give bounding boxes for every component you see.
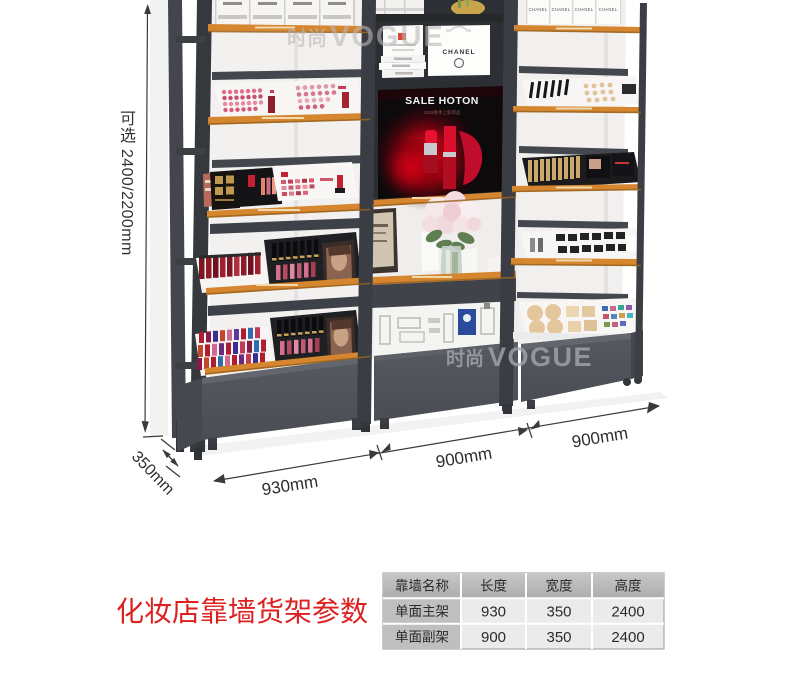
svg-text:化妆店靠墙货架参数: 化妆店靠墙货架参数 xyxy=(116,596,368,627)
svg-text:高度: 高度 xyxy=(615,578,642,594)
svg-text:宽度: 宽度 xyxy=(546,578,573,594)
svg-text:时尚: 时尚 xyxy=(287,26,327,50)
svg-text:长度: 长度 xyxy=(480,579,507,594)
svg-text:可: 可 xyxy=(120,111,136,128)
svg-text:2400/2200mm: 2400/2200mm xyxy=(118,149,135,256)
svg-text:SALE HOTON: SALE HOTON xyxy=(405,95,479,107)
svg-text:900: 900 xyxy=(481,629,506,646)
svg-text:VOGUE: VOGUE xyxy=(488,342,593,372)
svg-text:350: 350 xyxy=(546,629,571,646)
svg-text:VOGUE: VOGUE xyxy=(330,21,445,53)
svg-text:350: 350 xyxy=(546,604,571,621)
svg-text:单面主架: 单面主架 xyxy=(395,604,449,619)
svg-text:选: 选 xyxy=(120,127,136,145)
svg-text:时尚: 时尚 xyxy=(446,347,484,370)
svg-text:2400: 2400 xyxy=(611,629,644,646)
svg-text:CHANEL: CHANEL xyxy=(442,49,475,56)
svg-text:2400: 2400 xyxy=(611,604,644,621)
svg-text:930: 930 xyxy=(481,604,506,621)
svg-text:2019春季上新新品: 2019春季上新新品 xyxy=(423,109,461,116)
svg-text:CHANEL: CHANEL xyxy=(575,7,594,12)
svg-text:靠墙名称: 靠墙名称 xyxy=(395,579,449,594)
svg-text:CHANEL: CHANEL xyxy=(552,7,571,12)
svg-text:CHANEL: CHANEL xyxy=(599,7,618,12)
svg-text:CHANEL: CHANEL xyxy=(529,7,548,12)
svg-text:单面副架: 单面副架 xyxy=(395,630,449,645)
